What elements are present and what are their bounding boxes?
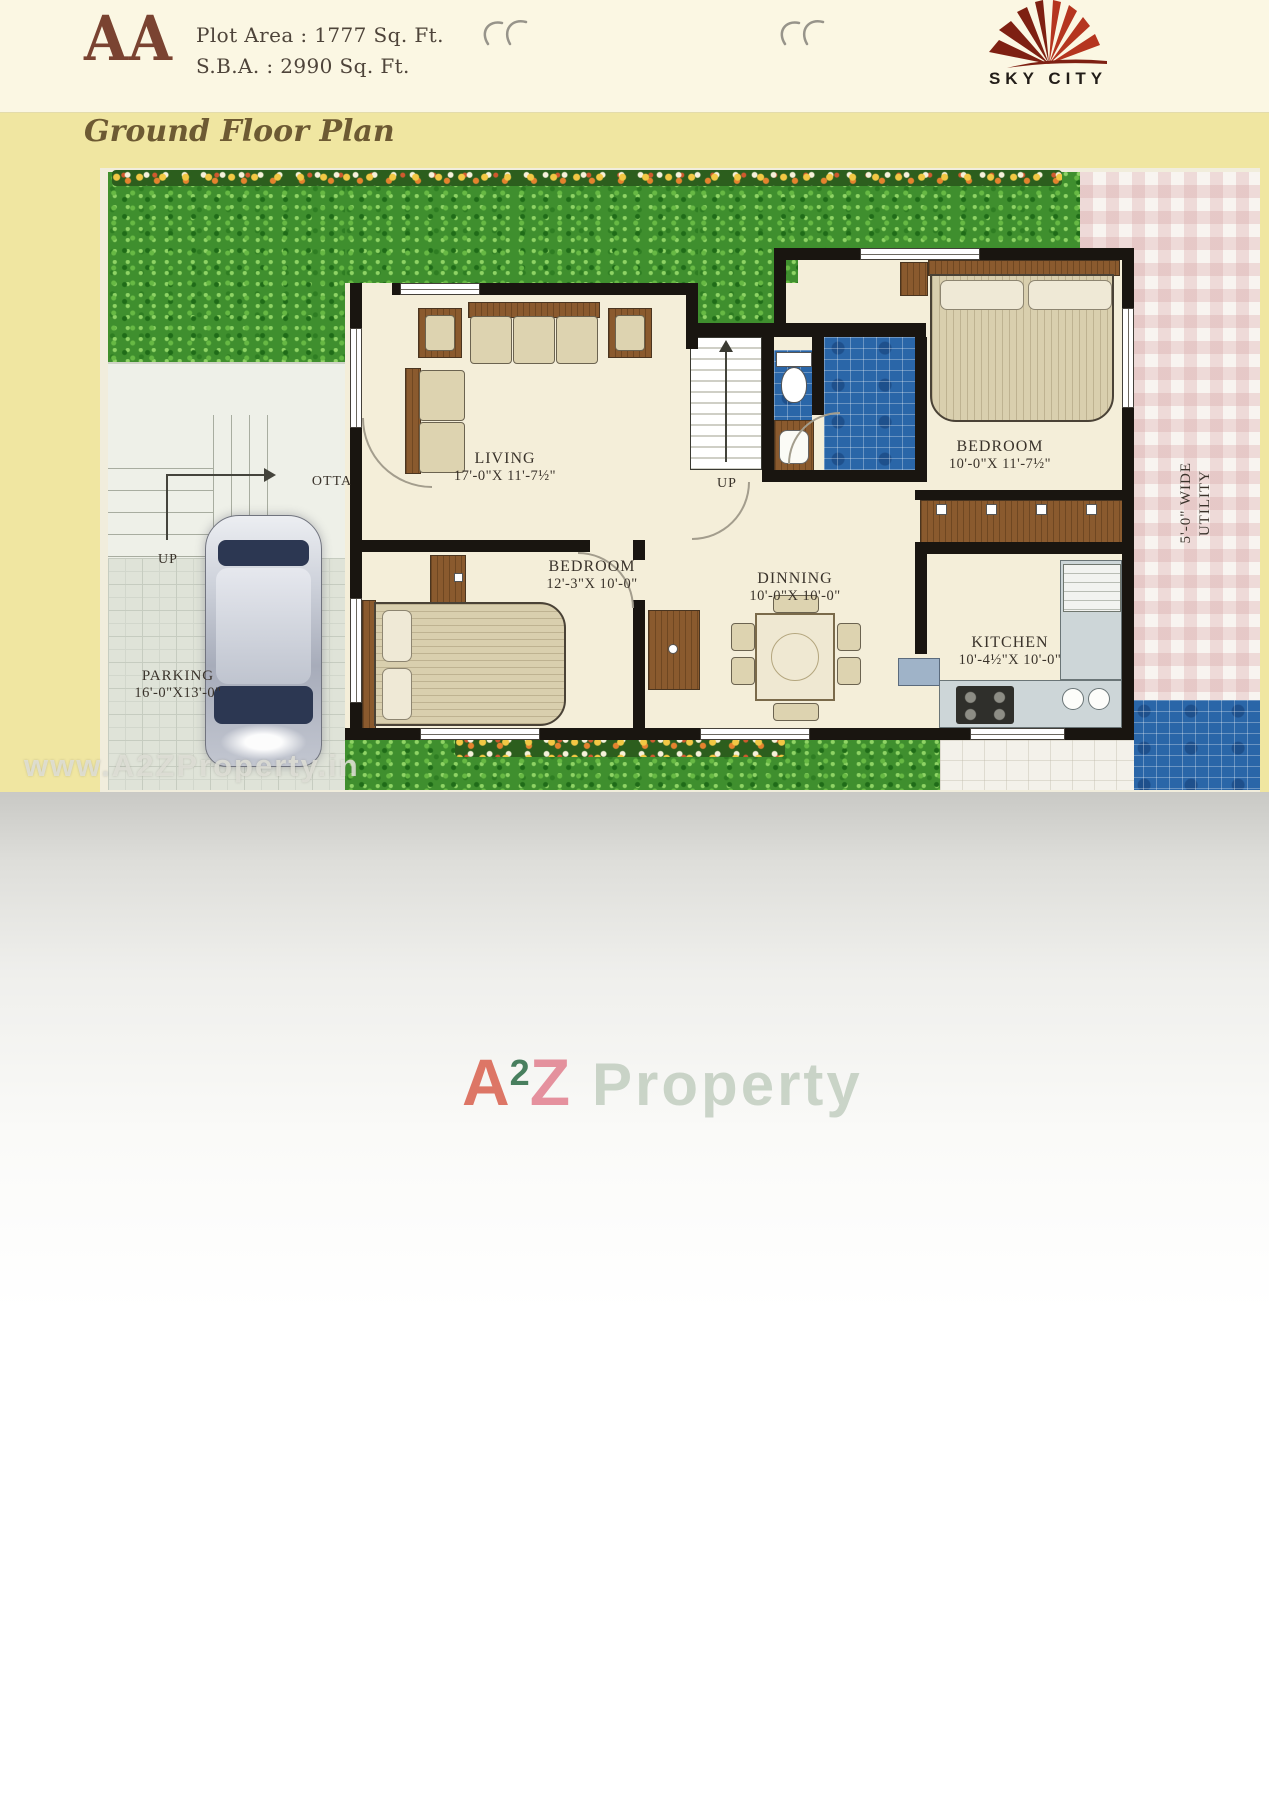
pillow	[940, 280, 1024, 310]
utility-label: 5'-0" WIDE UTILITY	[1168, 418, 1224, 588]
wardrobe-handle	[1086, 504, 1097, 515]
window	[400, 283, 480, 295]
watermark-letter-z: Z	[530, 1045, 570, 1119]
wall	[633, 540, 645, 560]
flower-border-top	[112, 170, 1062, 186]
room-label-dinning: DINNING 10'-0"X 10'-0"	[715, 570, 875, 605]
side-table-top	[615, 315, 645, 351]
toilet-tank	[776, 352, 812, 367]
window	[1122, 308, 1134, 408]
pillow	[382, 610, 412, 662]
car-roof	[216, 568, 311, 684]
page-title: Ground Floor Plan	[84, 114, 395, 149]
wall	[686, 283, 698, 349]
stove-cooktop	[956, 686, 1014, 724]
room-label-bedroom-right: BEDROOM 10'-0"X 11'-7½"	[920, 438, 1080, 473]
scan-background: A2ZProperty	[0, 792, 1269, 1814]
otta-label: OTTA	[296, 474, 368, 490]
page-header: AA Plot Area : 1777 Sq. Ft. S.B.A. : 299…	[0, 0, 1269, 113]
watermark-brand: A2ZProperty	[462, 1044, 863, 1120]
floor-plan: LIVING 17'-0"X 11'-7½" BEDROOM 12'-3"X 1…	[100, 168, 1260, 792]
wardrobe-handle	[454, 573, 463, 582]
sink-bowl	[1062, 688, 1084, 710]
lawn-notch	[698, 172, 786, 323]
refrigerator	[1063, 564, 1121, 612]
side-table-top	[425, 315, 455, 351]
lawn-front-left	[108, 172, 345, 362]
wall	[762, 470, 927, 482]
sofa-cushion	[556, 316, 598, 364]
page-curl-icon	[775, 16, 831, 50]
dining-chair	[773, 703, 819, 721]
wall	[762, 337, 774, 482]
wardrobe-handle	[986, 504, 997, 515]
otta-arrow-line	[166, 474, 266, 476]
bedside-table	[900, 262, 928, 296]
window	[700, 728, 810, 740]
wall	[812, 337, 824, 415]
wardrobe-handle	[936, 504, 947, 515]
room-label-kitchen: KITCHEN 10'-4½"X 10'-0"	[930, 634, 1090, 669]
sofa-cushion	[419, 370, 465, 421]
wall	[915, 542, 1134, 554]
plot-area-block: Plot Area : 1777 Sq. Ft. S.B.A. : 2990 S…	[196, 20, 444, 82]
wall	[686, 323, 926, 337]
window	[860, 248, 980, 260]
toilet-bowl	[781, 367, 807, 403]
rear-path	[940, 740, 1134, 790]
dresser-knob	[668, 644, 678, 654]
scanned-brochure-page: AA Plot Area : 1777 Sq. Ft. S.B.A. : 299…	[0, 0, 1269, 1814]
up-label-stairs: UP	[692, 476, 762, 492]
wall	[633, 600, 645, 740]
blue-tile-patio	[1130, 700, 1260, 790]
wall	[774, 248, 786, 336]
sba-text: S.B.A. : 2990 Sq. Ft.	[196, 51, 444, 82]
wall	[350, 540, 590, 552]
brochure-yellow-page: AA Plot Area : 1777 Sq. Ft. S.B.A. : 299…	[0, 0, 1269, 792]
dining-chair	[731, 657, 755, 685]
stairs-arrow-line	[725, 352, 727, 462]
dining-chair	[837, 657, 861, 685]
watermark-url: www.A2ZProperty.in	[24, 748, 360, 784]
brand-name: SKY CITY	[968, 69, 1128, 89]
watermark-digit-2: 2	[510, 1052, 530, 1093]
wall	[915, 554, 927, 654]
window	[350, 598, 362, 703]
pillow	[382, 668, 412, 720]
sky-city-logo: SKY CITY	[968, 0, 1128, 100]
dining-table	[755, 613, 835, 701]
sunburst-icon	[983, 0, 1113, 70]
window	[350, 328, 362, 428]
sink-bowl	[1088, 688, 1110, 710]
room-label-parking: PARKING 16'-0"X13'-0"	[108, 668, 248, 702]
car-rear-window	[218, 540, 309, 566]
room-label-bedroom-left: BEDROOM 12'-3"X 10'-0"	[512, 558, 672, 593]
otta-arrow-tail	[166, 474, 168, 540]
room-label-living: LIVING 17'-0"X 11'-7½"	[405, 450, 605, 485]
car-top-view	[205, 515, 322, 767]
section-code: AA	[84, 3, 173, 76]
wall	[915, 490, 1134, 500]
watermark-letter-a: A	[462, 1045, 510, 1119]
stairs-arrow-head	[719, 340, 733, 352]
window	[970, 728, 1065, 740]
pillow	[1028, 280, 1112, 310]
otta-steps-side	[108, 468, 213, 558]
watermark-name: Property	[592, 1051, 863, 1118]
dining-chair	[731, 623, 755, 651]
dining-chair	[837, 623, 861, 651]
otta-arrow-head	[264, 468, 276, 482]
page-curl-icon	[478, 16, 534, 50]
plot-area-text: Plot Area : 1777 Sq. Ft.	[196, 20, 444, 51]
sofa-cushion	[470, 316, 512, 364]
up-label-otta: UP	[148, 552, 188, 568]
wardrobe-handle	[1036, 504, 1047, 515]
window	[420, 728, 540, 740]
sofa-cushion	[513, 316, 555, 364]
